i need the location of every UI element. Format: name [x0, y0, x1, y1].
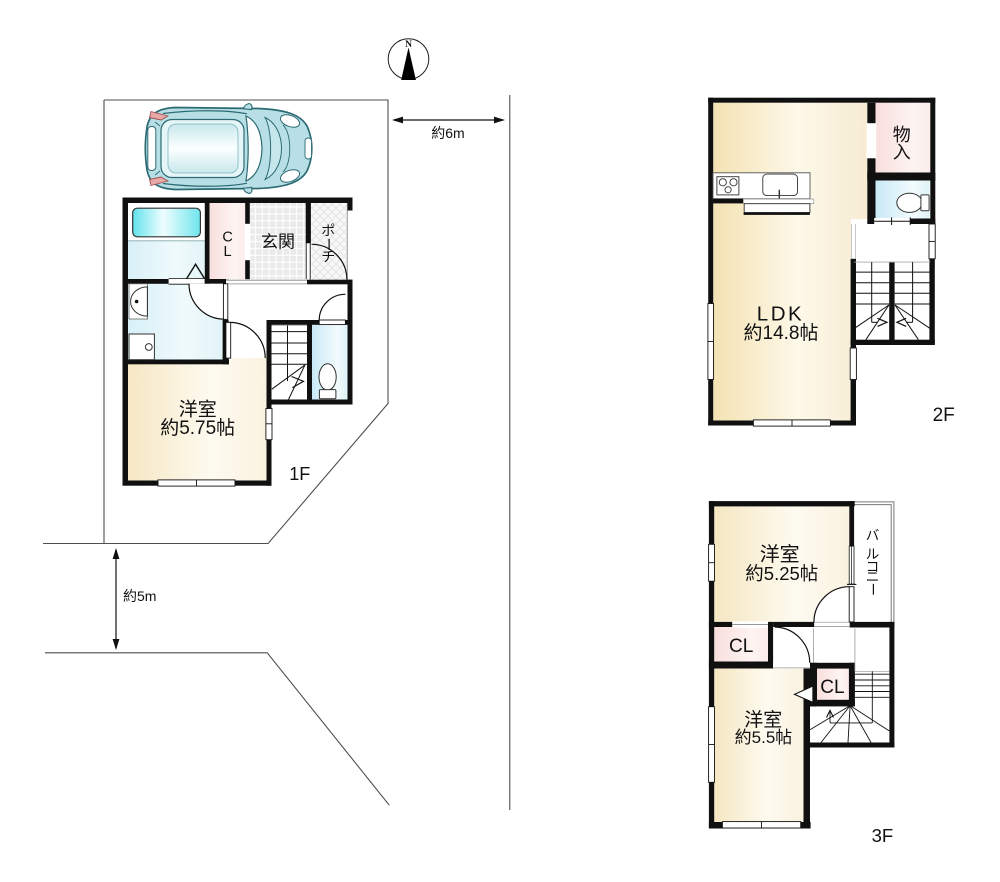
svg-text:CL: CL [729, 636, 753, 657]
svg-text:約5.25帖: 約5.25帖 [745, 563, 818, 584]
svg-text:N: N [405, 40, 412, 50]
svg-text:1F: 1F [289, 464, 310, 484]
svg-text:ポ: ポ [321, 223, 335, 239]
svg-text:玄関: 玄関 [261, 232, 295, 251]
svg-text:入: 入 [893, 143, 911, 163]
svg-text:洋室: 洋室 [179, 398, 217, 420]
svg-text:3F: 3F [872, 825, 894, 846]
svg-text:約5.5帖: 約5.5帖 [735, 728, 793, 747]
svg-text:バ: バ [866, 528, 880, 543]
svg-text:約6m: 約6m [431, 125, 464, 141]
svg-text:約14.8帖: 約14.8帖 [744, 322, 819, 344]
svg-text:2F: 2F [933, 405, 955, 426]
svg-text:約5m: 約5m [123, 588, 156, 604]
svg-text:ー: ー [865, 583, 880, 597]
svg-text:約5.75帖: 約5.75帖 [160, 417, 235, 439]
svg-text:チ: チ [321, 249, 335, 265]
svg-text:CL: CL [820, 677, 844, 698]
svg-text:L: L [224, 244, 232, 260]
